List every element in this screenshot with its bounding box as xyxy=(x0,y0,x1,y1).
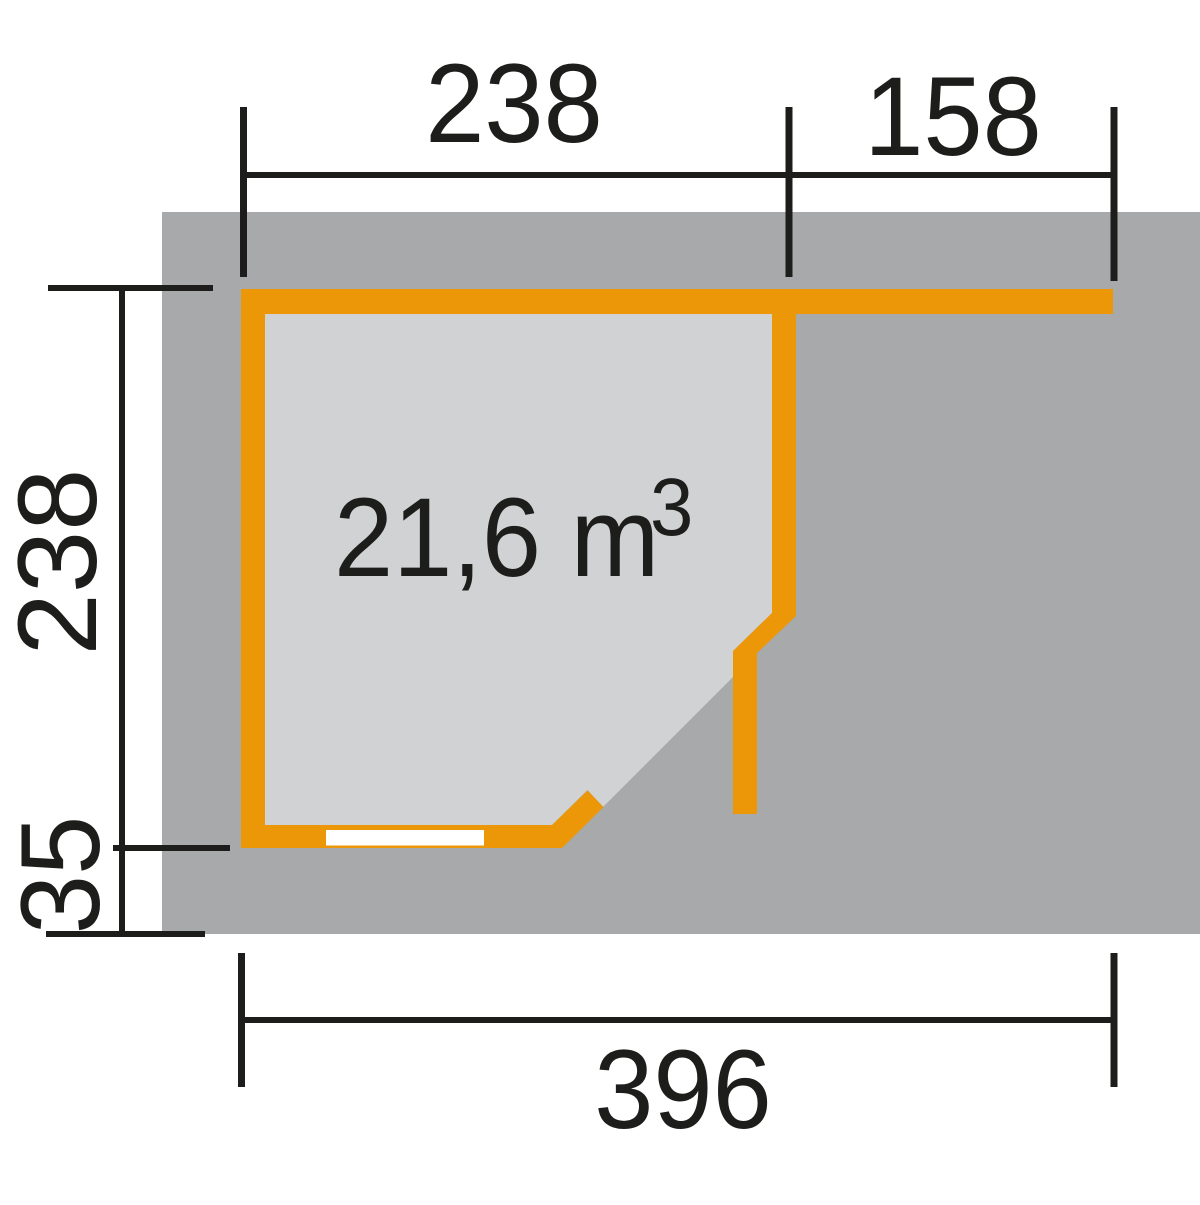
svg-text:3: 3 xyxy=(650,461,693,552)
svg-text:35: 35 xyxy=(0,816,124,934)
svg-text:396: 396 xyxy=(594,1028,772,1153)
svg-text:238: 238 xyxy=(0,469,120,656)
svg-text:238: 238 xyxy=(425,42,603,167)
svg-text:21,6 m: 21,6 m xyxy=(334,476,659,601)
svg-text:158: 158 xyxy=(864,55,1042,180)
